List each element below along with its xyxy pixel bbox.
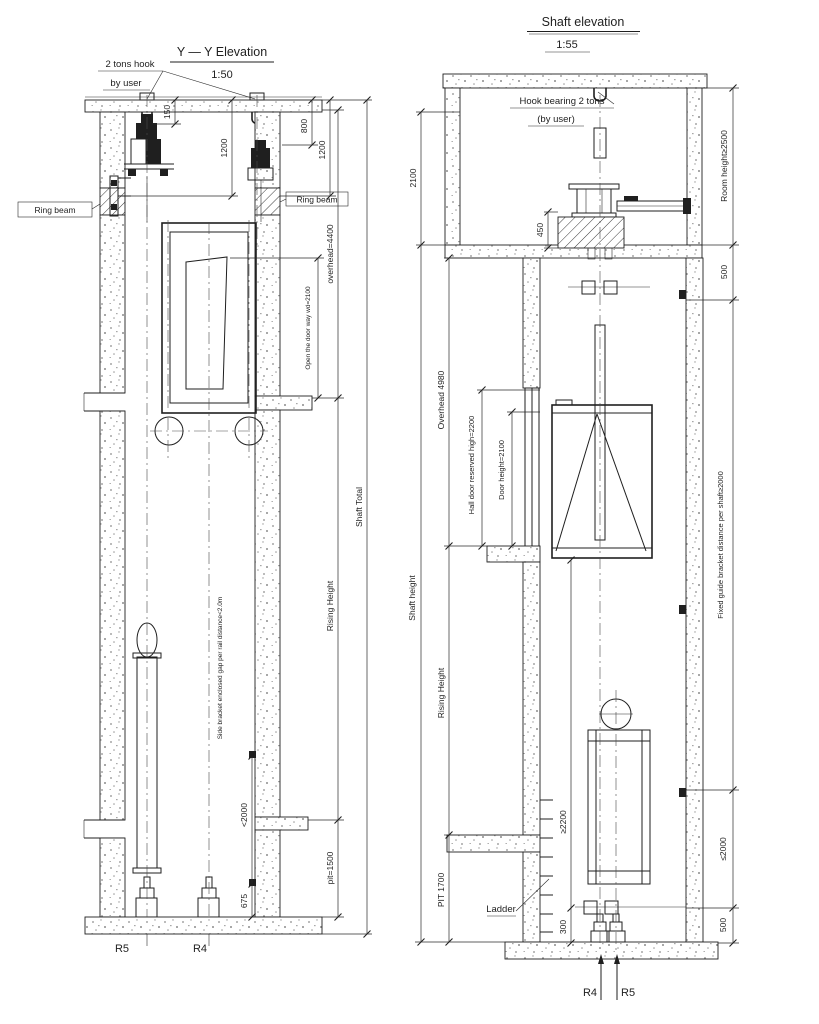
hook-note-right: Hook bearing 2 tons (by user) [510,92,614,126]
dim-shaft-total: Shaft Total [354,487,364,527]
shaft-left-wall [447,258,540,942]
lower-guide-shoes [575,901,686,914]
buffer-r4: R4 [193,877,219,955]
sling-brace [597,414,646,551]
dim-300: 300 [558,920,568,934]
hook-bearing-line1: Hook bearing 2 tons [519,96,604,107]
hook-note-line1: 2 tons hook [105,59,154,70]
dim-2100: 2100 [408,168,418,187]
elevator-car-right-view [552,400,652,558]
bottom-landing-ledge [255,817,308,830]
dim-ge2200: ≥2200 [558,810,568,834]
guide-bracket-mark [679,290,686,299]
dim-500-bottom: 500 [718,918,728,932]
dim-door-way: Open the door way wd=2100 [305,286,312,370]
guide-bracket-mark [679,788,686,797]
machine-room-ceiling [443,74,707,88]
right-shaft-wall [249,112,312,917]
dim-shaft-height: Shaft height [407,575,417,621]
dim-rising-height-left: Rising Height [325,580,335,631]
dim-rising-height-right: Rising Height [436,667,446,718]
drawing-sheet: Y — Y Elevation 1:50 2 tons hook by user [0,0,819,1024]
counterweight-left-view [133,623,161,873]
top-landing-ledge [255,396,312,410]
hook-bearing-line2: (by user) [537,114,574,125]
guide-bracket-mark [679,605,686,614]
dim-room-height: Room height≥2500 [719,130,729,202]
dim-pit-1500: pit=1500 [325,851,335,884]
dim-800: 800 [299,119,309,133]
left-shaft-wall [84,112,125,917]
bottom-landing-slab [447,835,540,852]
note-side-bracket: Side bracket enclosed gap per rail dista… [217,597,224,740]
left-view-scale: 1:50 [211,69,232,81]
dim-150: 150 [162,105,172,119]
ring-beam-left-text: Ring beam [34,205,75,215]
dim-675: 675 [239,894,249,908]
centerlines-left-view [147,95,268,917]
right-elevation-view: Shaft elevation 1:55 Hook bearing 2 tons… [407,15,739,1000]
ring-beam-left-section [100,188,125,215]
right-view-scale: 1:55 [556,39,577,51]
buffer-r4-label: R4 [193,943,207,955]
left-view-title: Y — Y Elevation [177,45,267,59]
top-landing-slab [487,546,540,562]
right-view-title-block: Shaft elevation 1:55 [527,15,640,52]
buffer-label-r4-right: R4 [583,954,604,1000]
left-elevation-view: Y — Y Elevation 1:50 2 tons hook by user [18,45,372,955]
buffers-right-view [591,914,625,942]
dim-hall-door: Hall door reserved high=2200 [467,416,476,515]
dim-pit-1700: PIT 1700 [436,873,446,908]
dim-door-height: Door height=2100 [497,440,506,500]
ring-beam-right-section [255,188,280,215]
hook-note-line2: by user [110,78,141,89]
dim-overhead-4980: Overhead 4980 [436,370,446,429]
dim-guide-bracket: Fixed guide bracket distance per shaft≥2… [716,471,725,619]
right-view-title: Shaft elevation [542,15,625,29]
guide-bracket-mark [249,751,256,758]
dim-1200-outer: 1200 [317,140,327,159]
dim-overhead-4400: overhead=4400 [325,224,335,284]
dim-450: 450 [535,223,545,237]
dim-1200-inner: 1200 [219,138,229,157]
traction-machine-right-view [558,128,691,248]
buffer-label-r5-right: R5 [614,954,635,1000]
sling-brace [556,414,597,551]
upper-guide-shoes [568,281,650,294]
dim-le2000: ≤2000 [718,837,728,861]
counterweight-right-view [588,699,650,884]
pit-floor-slab [85,917,322,934]
pit-floor-slab-right [505,942,718,959]
left-view-title-block: Y — Y Elevation 1:50 [170,45,274,81]
car-door-leaf [186,257,227,389]
ladder-label: Ladder [486,904,516,915]
buffer-r5-right-text: R5 [621,987,635,999]
machine-pedestal [558,217,624,248]
ring-beam-label-left: Ring beam [18,202,100,217]
dim-lt2000: <2000 [239,803,249,827]
buffer-r4-right-text: R4 [583,987,597,999]
shaft-right-wall [679,258,703,942]
guide-bracket-mark [249,879,256,886]
pit-ladder: Ladder [486,800,553,932]
dim-500-top: 500 [719,265,729,279]
buffer-r5-label: R5 [115,943,129,955]
